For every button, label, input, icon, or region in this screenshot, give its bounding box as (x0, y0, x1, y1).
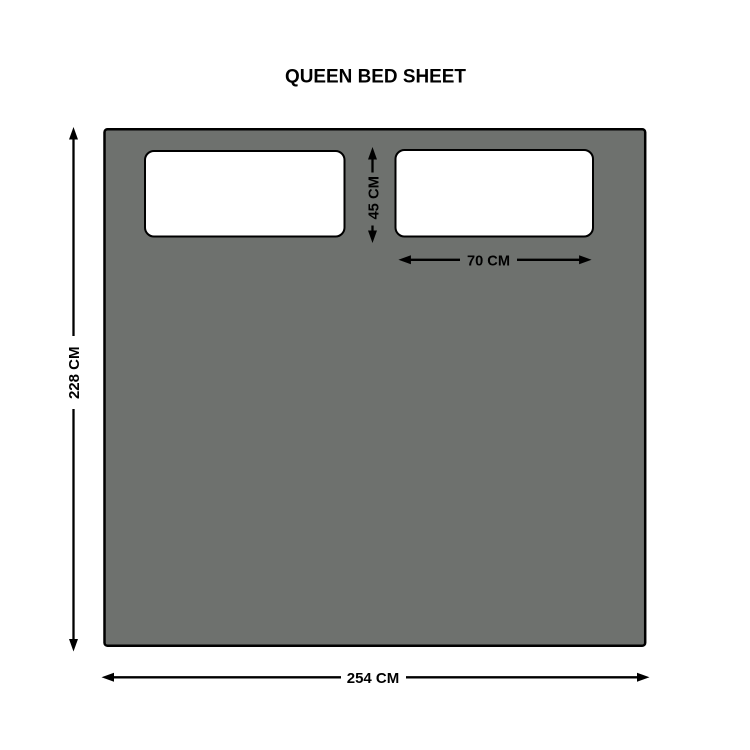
svg-text:70 CM: 70 CM (467, 252, 510, 269)
svg-text:QUEEN BED SHEET: QUEEN BED SHEET (285, 67, 466, 88)
svg-text:45 CM: 45 CM (365, 176, 382, 220)
svg-text:254 CM: 254 CM (347, 670, 400, 687)
svg-text:228 CM: 228 CM (66, 347, 83, 400)
